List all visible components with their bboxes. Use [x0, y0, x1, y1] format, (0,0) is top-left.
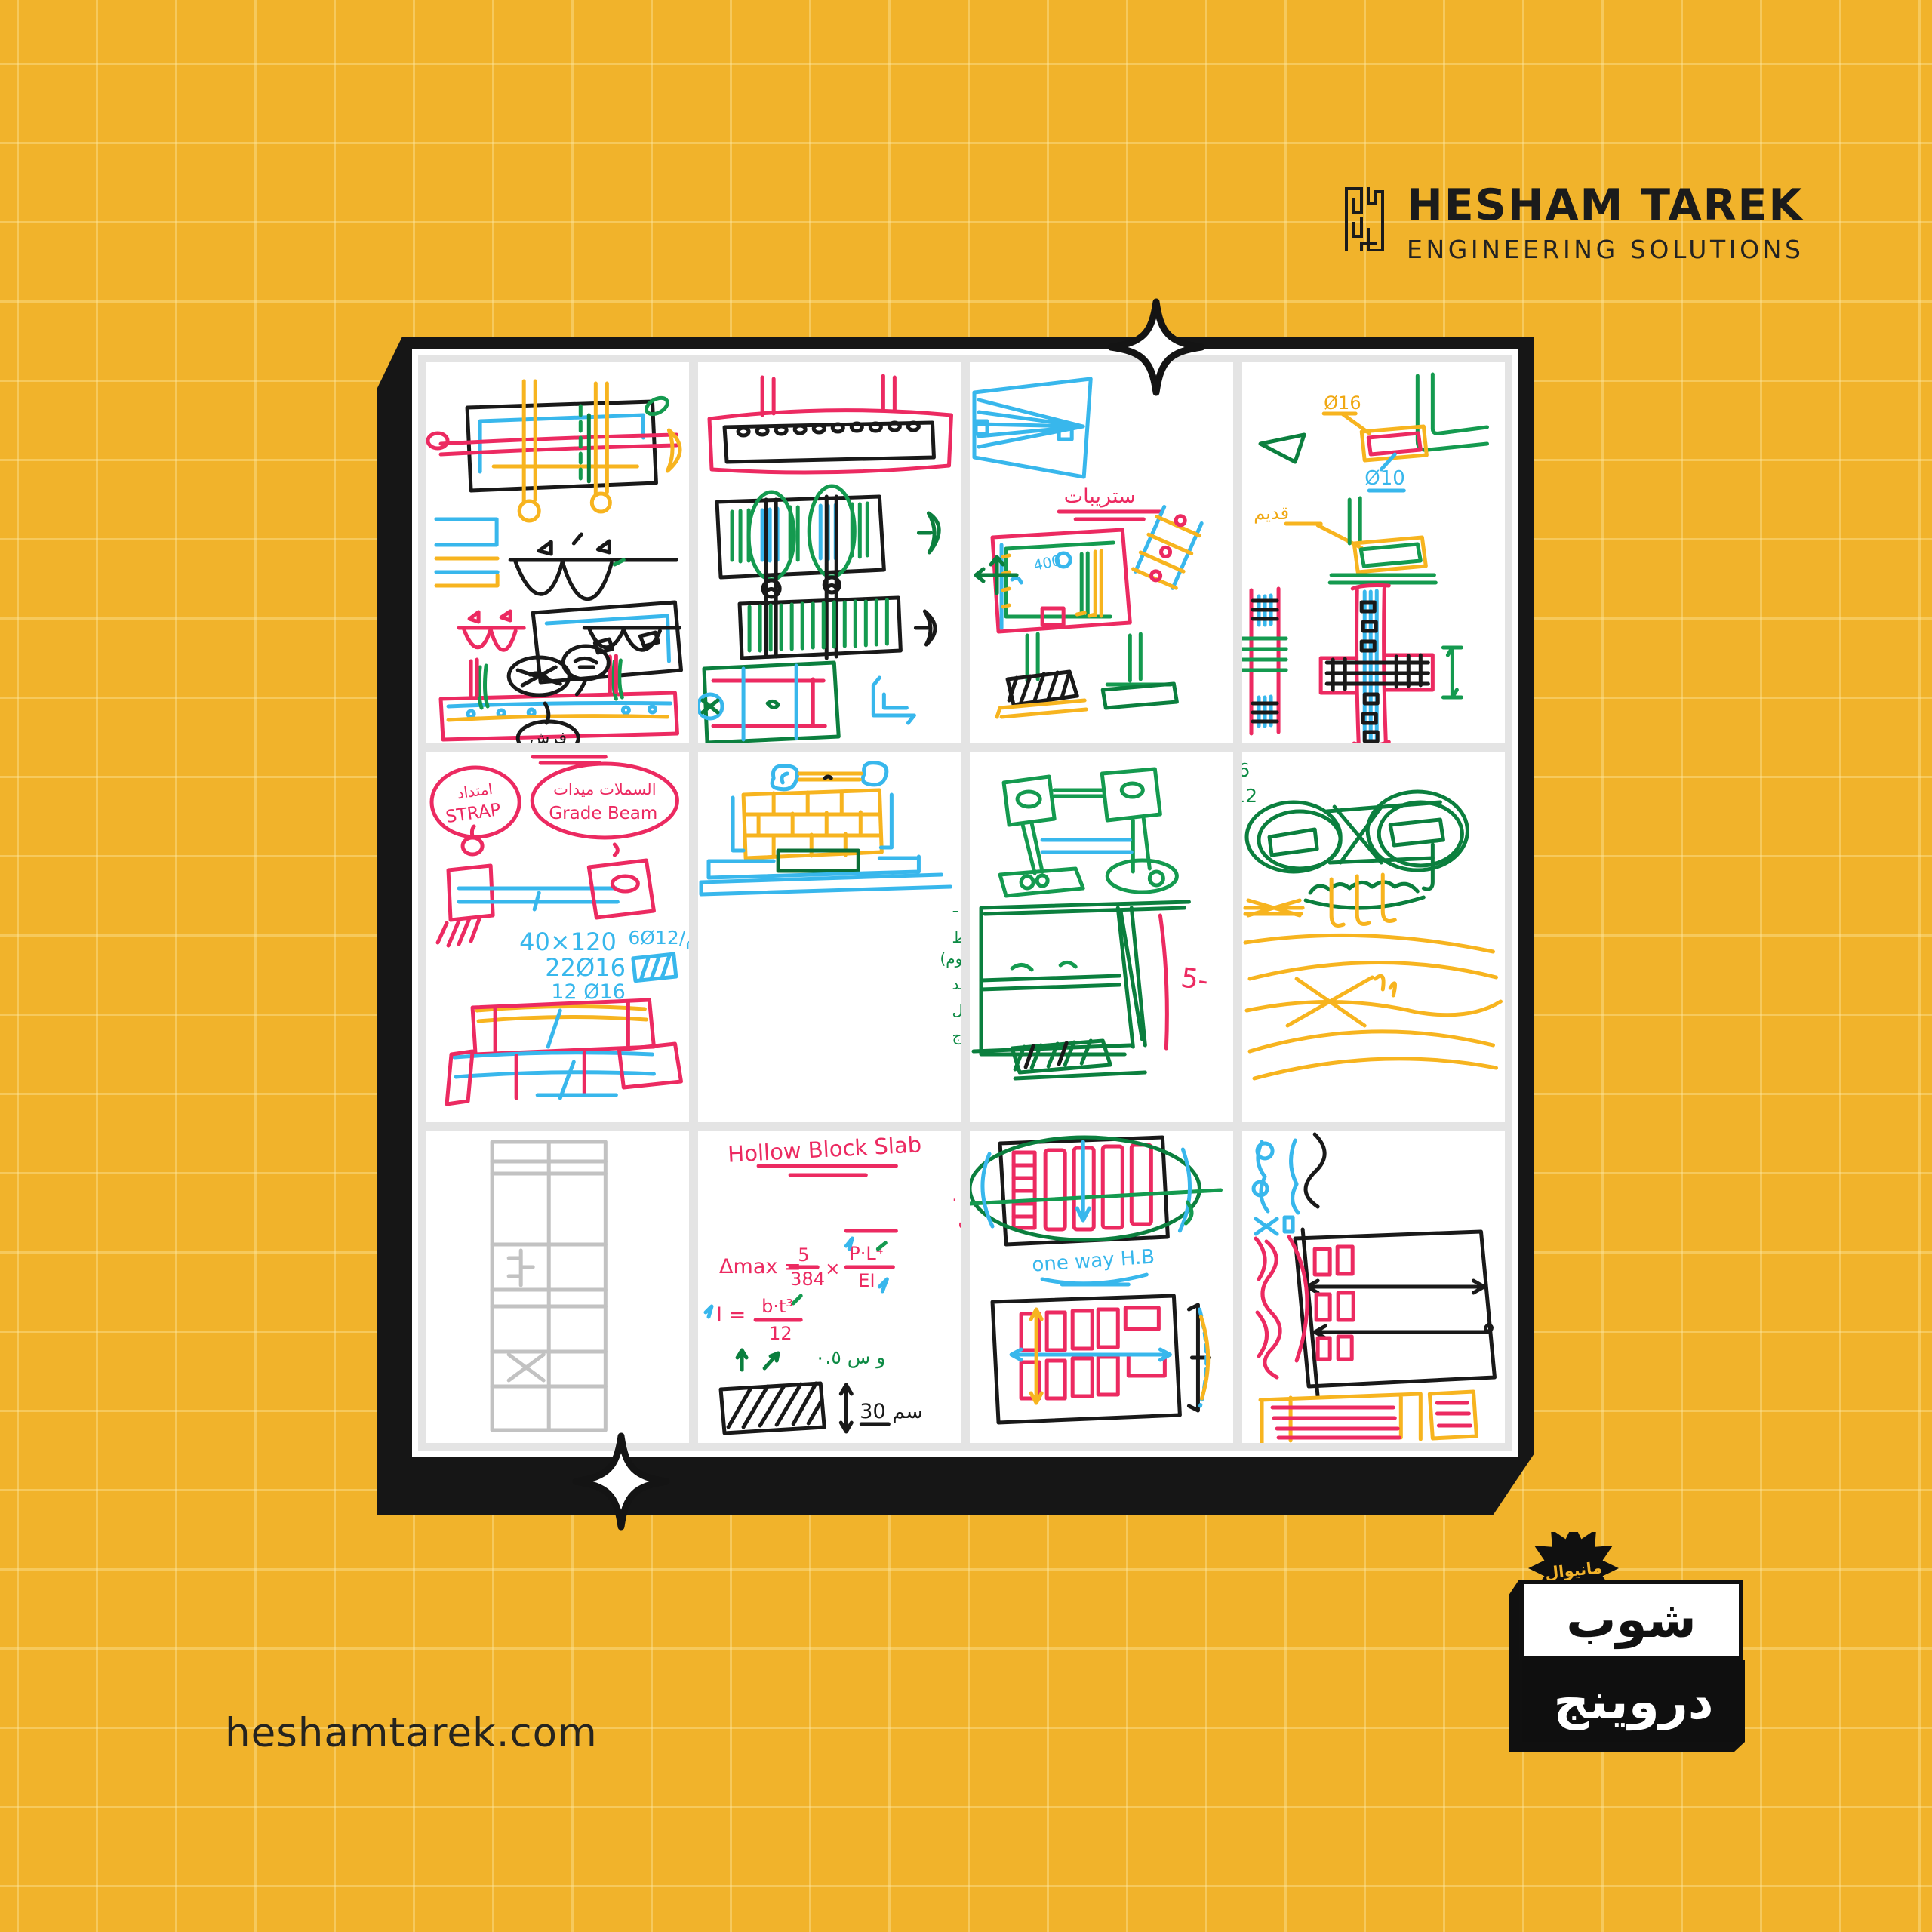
sketch-label: 5	[798, 1244, 809, 1266]
sketch-panel-5: امتداد STRAP السملات ميدات Grade Beam 40…	[426, 752, 689, 1122]
sketch-label: 6Ø12/م	[628, 927, 688, 949]
sketch-label: قديم	[1254, 503, 1289, 524]
sketch-label: ٤) لتقليل ارتفاع حر العمود وتقليل الانبع…	[952, 1026, 961, 1044]
sketch-label: 30 سم	[860, 1400, 923, 1423]
sketch-label: ستريبات	[1064, 485, 1136, 508]
sketch-illustration	[698, 362, 961, 743]
sketch-illustration: Ø16 Ø10 قديم	[1242, 362, 1506, 743]
sketch-illustration: ستريبات 400	[970, 362, 1233, 743]
sketch-label: ٣) يحمل مباني بسلم متغير الميل	[952, 1001, 961, 1020]
sketch-panel-12	[1242, 1131, 1506, 1443]
sketch-panel-10: Hollow Block Slab ١) قلل الكمرات واحمل ا…	[698, 1131, 961, 1443]
sketch-label: فرش	[529, 729, 567, 743]
sketch-label: ١) بدل حوائط حاملة بدروم أو حوائط	[952, 928, 961, 946]
sketch-board: فرش	[377, 337, 1534, 1515]
sketch-label: ١) قلل الكمرات واحمل الحوائط .	[952, 1186, 961, 1204]
sparkle-top-icon	[1103, 294, 1209, 400]
sketch-panel-3: ستريبات 400	[970, 362, 1233, 743]
sketch-panel-9	[426, 1131, 689, 1443]
sketch-label: EI	[858, 1270, 875, 1291]
brand-tagline: ENGINEERING SOLUTIONS	[1407, 235, 1804, 264]
sketch-label: ×	[825, 1258, 840, 1279]
sketch-label: STRAP	[445, 800, 502, 827]
sketch-panel-8: 4Ø16 = سفلي 2Ø12 = علوي	[1242, 752, 1506, 1122]
sketch-label: امتداد	[456, 780, 494, 802]
sparkle-bottom-icon	[568, 1429, 674, 1534]
sketch-label: 5-	[1179, 962, 1210, 997]
sketch-label: السملات ميدات	[553, 780, 656, 798]
sketch-label: one way H.B	[1031, 1245, 1155, 1276]
sketch-label: Hollow Block Slab	[727, 1131, 921, 1167]
sketch-illustration: 4Ø16 = سفلي 2Ø12 = علوي	[1242, 752, 1506, 1122]
sketch-panel-6: وظيفة السملات :- ١) بدل حوائط حاملة بدرو…	[698, 752, 961, 1122]
sketch-label: 40×120	[519, 928, 617, 956]
sketch-label: 12	[769, 1323, 792, 1344]
brand-name: HESHAM TAREK	[1407, 184, 1804, 227]
sketch-label: 22Ø16	[545, 953, 626, 982]
badge-word-top: شوب	[1519, 1580, 1743, 1660]
sketch-label: ٢) يقاوم الضغط كجزء من القواعد	[952, 975, 961, 993]
brand-logo: HESHAM TAREK ENGINEERING SOLUTIONS	[1343, 184, 1804, 264]
sketch-panel-11: one way H.B	[970, 1131, 1233, 1443]
sketch-illustration	[426, 1131, 689, 1443]
panel-grid: فرش	[418, 355, 1512, 1451]
sketch-illustration: فرش	[426, 362, 689, 743]
sketch-label: Ø16	[1324, 392, 1361, 414]
board-paper: فرش	[412, 349, 1518, 1457]
sketch-illustration: one way H.B	[970, 1131, 1233, 1443]
website-url: heshamtarek.com	[225, 1710, 598, 1756]
shop-drawing-badge: مانيوال شوب دروينج	[1506, 1532, 1800, 1766]
sketch-illustration: امتداد STRAP السملات ميدات Grade Beam 40…	[426, 752, 689, 1122]
sketch-illustration: 5-	[970, 752, 1233, 1122]
sketch-label: و س ٠.٥	[814, 1346, 884, 1369]
sketch-label: P·L⁴	[849, 1243, 883, 1264]
badge-word-bottom: دروينج	[1522, 1660, 1745, 1742]
sketch-illustration: وظيفة السملات :- ١) بدل حوائط حاملة بدرو…	[698, 752, 961, 1122]
sketch-label: Ø10	[1364, 467, 1405, 490]
sketch-panel-1: فرش	[426, 362, 689, 743]
sketch-label: b·t³	[761, 1296, 793, 1317]
sketch-label: I =	[716, 1303, 746, 1327]
sketch-label: 4Ø16 = سفلي	[1242, 759, 1250, 781]
sketch-label: الأرض (حاملة عدم وجود بدروم)	[940, 949, 961, 968]
sketch-panel-7: 5-	[970, 752, 1233, 1122]
poster: { "brand": { "name": "HESHAM TAREK", "ta…	[0, 0, 1932, 1932]
monogram-icon	[1343, 184, 1386, 251]
sketch-label: وظيفة السملات :-	[952, 900, 961, 922]
sketch-illustration	[1242, 1131, 1506, 1443]
sketch-label: Grade Beam	[549, 804, 657, 823]
sketch-label: 2Ø12 = علوي	[1242, 785, 1257, 807]
sketch-illustration: Hollow Block Slab ١) قلل الكمرات واحمل ا…	[698, 1131, 961, 1443]
sketch-label: ٢) البحور الكبيرة استخدم الدبل بلوكن	[958, 1210, 961, 1229]
sketch-panel-2	[698, 362, 961, 743]
sketch-panel-4: Ø16 Ø10 قديم	[1242, 362, 1506, 743]
sketch-label: 384	[790, 1269, 825, 1290]
